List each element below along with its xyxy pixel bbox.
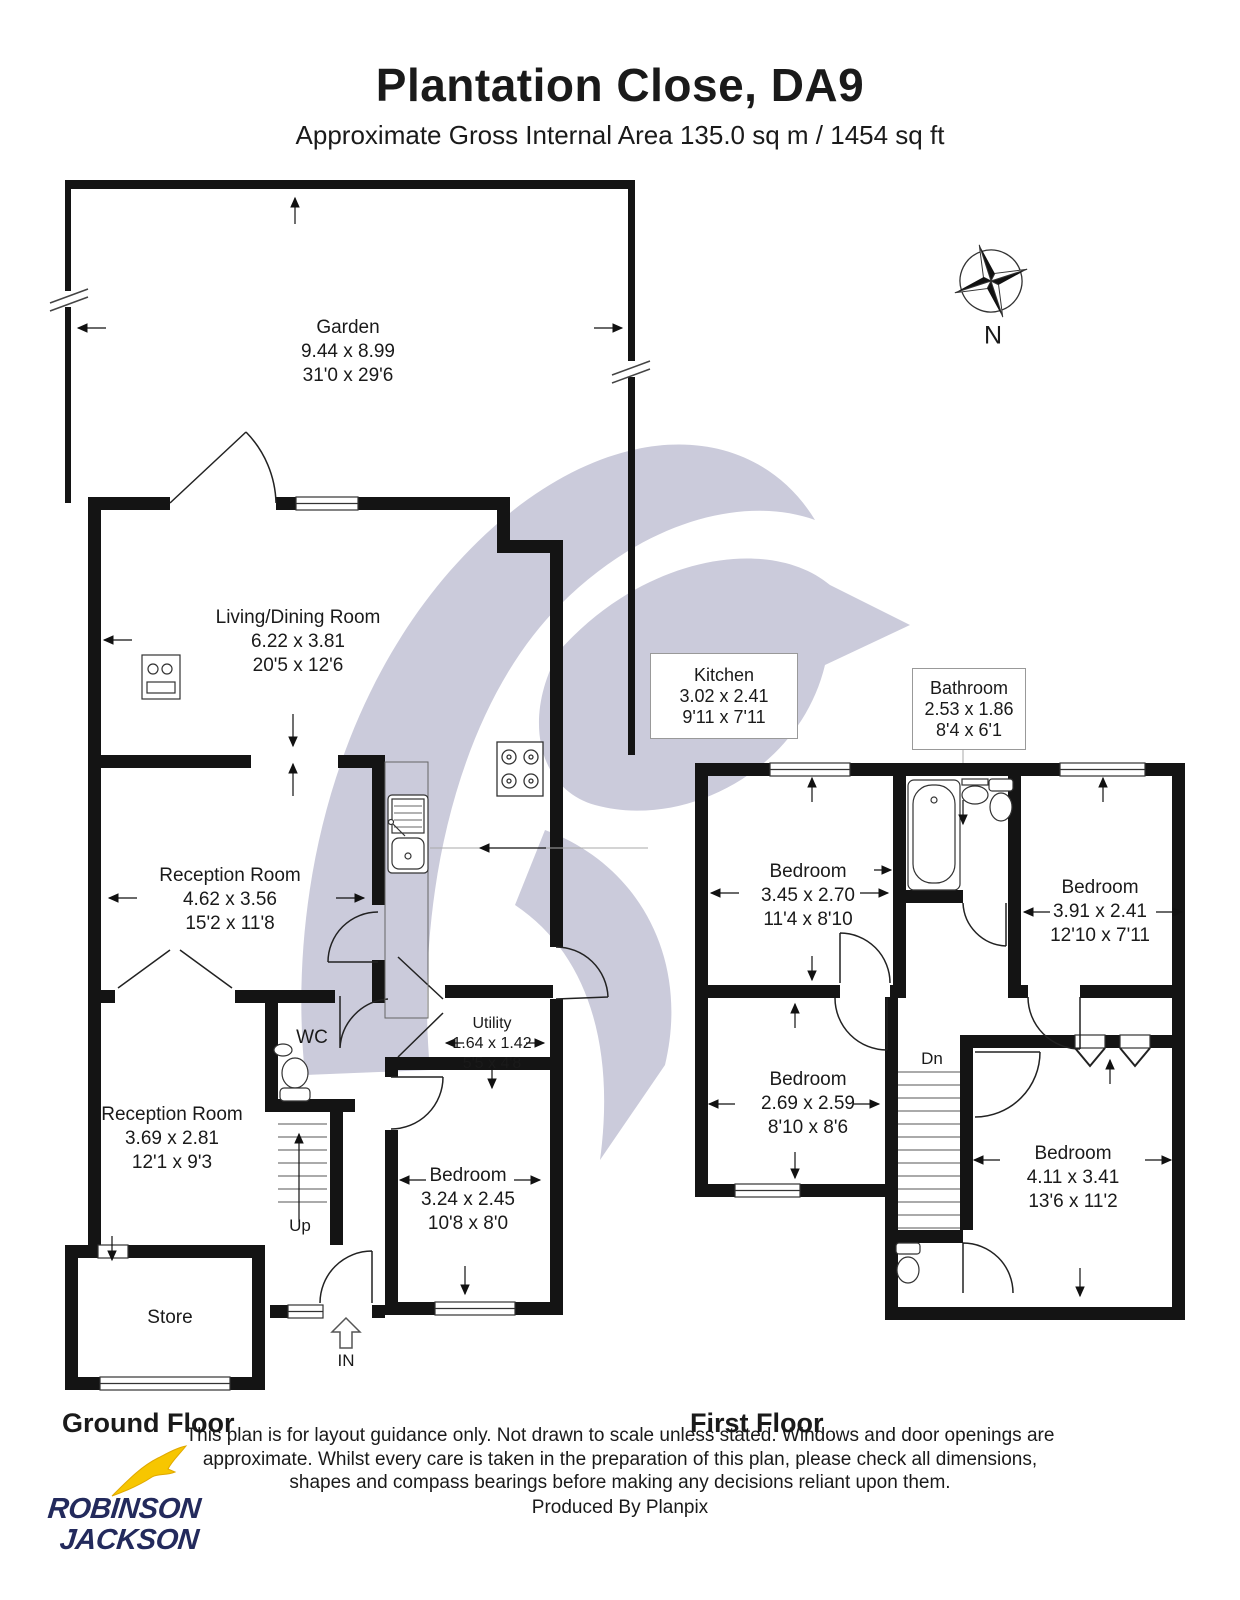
room-label-store: Store — [147, 1306, 192, 1330]
room-label-bedroom-1: Bedroom 3.45 x 2.70 11'4 x 8'10 — [761, 860, 855, 932]
entrance-arrow-icon — [332, 1318, 360, 1348]
floorplan-page: Plantation Close, DA9 Approximate Gross … — [0, 0, 1240, 1600]
compass-icon — [943, 233, 1039, 329]
living-room-unit-icon — [142, 655, 180, 699]
stove-icon — [497, 742, 543, 796]
room-label-kitchen: Kitchen 3.02 x 2.41 9'11 x 7'11 — [650, 653, 798, 739]
stairs-down-label: Dn — [921, 1049, 943, 1069]
disclaimer-text: This plan is for layout guidance only. N… — [180, 1424, 1060, 1495]
room-label-bedroom-ground: Bedroom 3.24 x 2.45 10'8 x 8'0 — [421, 1164, 515, 1236]
logo-bird-icon — [112, 1446, 186, 1496]
room-label-reception-1: Reception Room 4.62 x 3.56 15'2 x 11'8 — [159, 864, 301, 936]
room-label-wc: WC — [296, 1026, 328, 1050]
stairs-up-label: Up — [289, 1216, 311, 1236]
room-label-bedroom-2: Bedroom 3.91 x 2.41 12'10 x 7'11 — [1050, 876, 1150, 948]
room-label-garden: Garden 9.44 x 8.99 31'0 x 29'6 — [301, 316, 395, 388]
page-subtitle: Approximate Gross Internal Area 135.0 sq… — [0, 120, 1240, 151]
bay-window-splays — [1075, 1048, 1150, 1066]
first-wc-toilet-icon — [896, 1243, 920, 1283]
room-label-bedroom-3: Bedroom 2.69 x 2.59 8'10 x 8'6 — [761, 1068, 855, 1140]
compass-north-label: N — [984, 322, 1002, 351]
room-label-bedroom-4: Bedroom 4.11 x 3.41 13'6 x 11'2 — [1027, 1142, 1120, 1214]
stairs-up — [278, 1124, 327, 1202]
kitchen-sink-icon — [388, 795, 428, 873]
logo-jackson: JACKSON — [58, 1525, 199, 1555]
logo-robinson: ROBINSON — [46, 1494, 201, 1524]
stairs-down — [898, 1072, 960, 1228]
floor-plan-graphics — [0, 0, 1240, 1600]
room-label-reception-2: Reception Room 3.69 x 2.81 12'1 x 9'3 — [101, 1103, 243, 1175]
room-label-utility: Utility 1.64 x 1.42 5'5 x 4'8 — [452, 1014, 531, 1074]
basin-icon — [962, 779, 988, 804]
bathroom-toilet-icon — [989, 779, 1013, 821]
disclaimer: This plan is for layout guidance only. N… — [180, 1424, 1060, 1519]
room-label-living-dining: Living/Dining Room 6.22 x 3.81 20'5 x 12… — [216, 606, 381, 678]
page-title: Plantation Close, DA9 — [0, 58, 1240, 112]
bath-icon — [908, 780, 960, 890]
produced-by: Produced By Planpix — [180, 1496, 1060, 1520]
room-label-bathroom: Bathroom 2.53 x 1.86 8'4 x 6'1 — [912, 668, 1026, 750]
entrance-in-label: IN — [338, 1351, 355, 1371]
